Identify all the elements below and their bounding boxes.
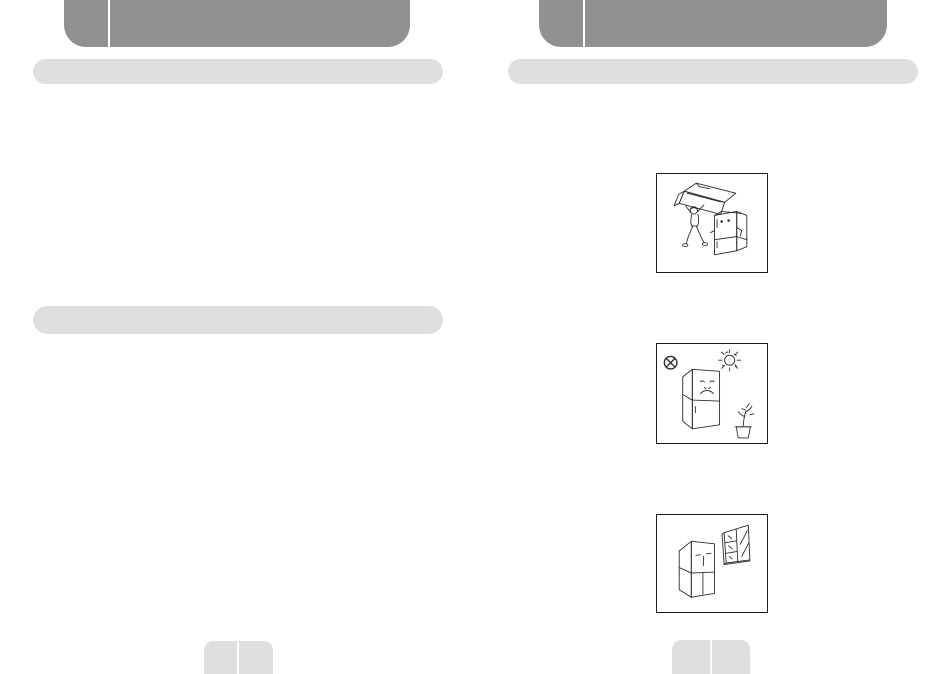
no-sunlight-illustration-drawing — [657, 344, 767, 443]
page-number-tab-segment — [239, 641, 273, 674]
left-chapter-header-bar — [64, 0, 410, 47]
left-page-number-tab — [204, 641, 273, 674]
page-number-tab-segment — [672, 640, 710, 674]
window-illustration-drawing — [657, 515, 767, 612]
illustration-carry-refrigerator — [656, 173, 768, 273]
packaged-box-shape — [674, 183, 736, 214]
page-number-tab-segment — [204, 641, 237, 674]
page-number-tab-segment — [712, 640, 750, 674]
refrigerator-shape — [679, 541, 714, 597]
manual-spread — [0, 0, 950, 674]
carry-illustration-drawing — [657, 174, 767, 272]
refrigerator-shape — [710, 211, 746, 254]
right-page-number-tab — [672, 640, 750, 674]
illustration-window-rain — [656, 514, 768, 613]
person-figure — [683, 205, 708, 247]
right-section-heading-bar-1 — [508, 59, 918, 84]
left-section-heading-bar-2 — [33, 306, 443, 334]
right-chapter-header-bar — [539, 0, 887, 47]
sad-refrigerator-shape — [683, 369, 720, 429]
prohibition-icon — [664, 356, 677, 369]
sun-icon — [719, 350, 741, 371]
illustration-no-sunlight — [656, 343, 768, 444]
header-index-tab-divider — [583, 0, 585, 47]
rainy-window-icon — [722, 525, 750, 564]
left-section-heading-bar-1 — [33, 59, 443, 84]
potted-plant-icon — [735, 404, 754, 438]
header-index-tab-divider — [108, 0, 110, 47]
